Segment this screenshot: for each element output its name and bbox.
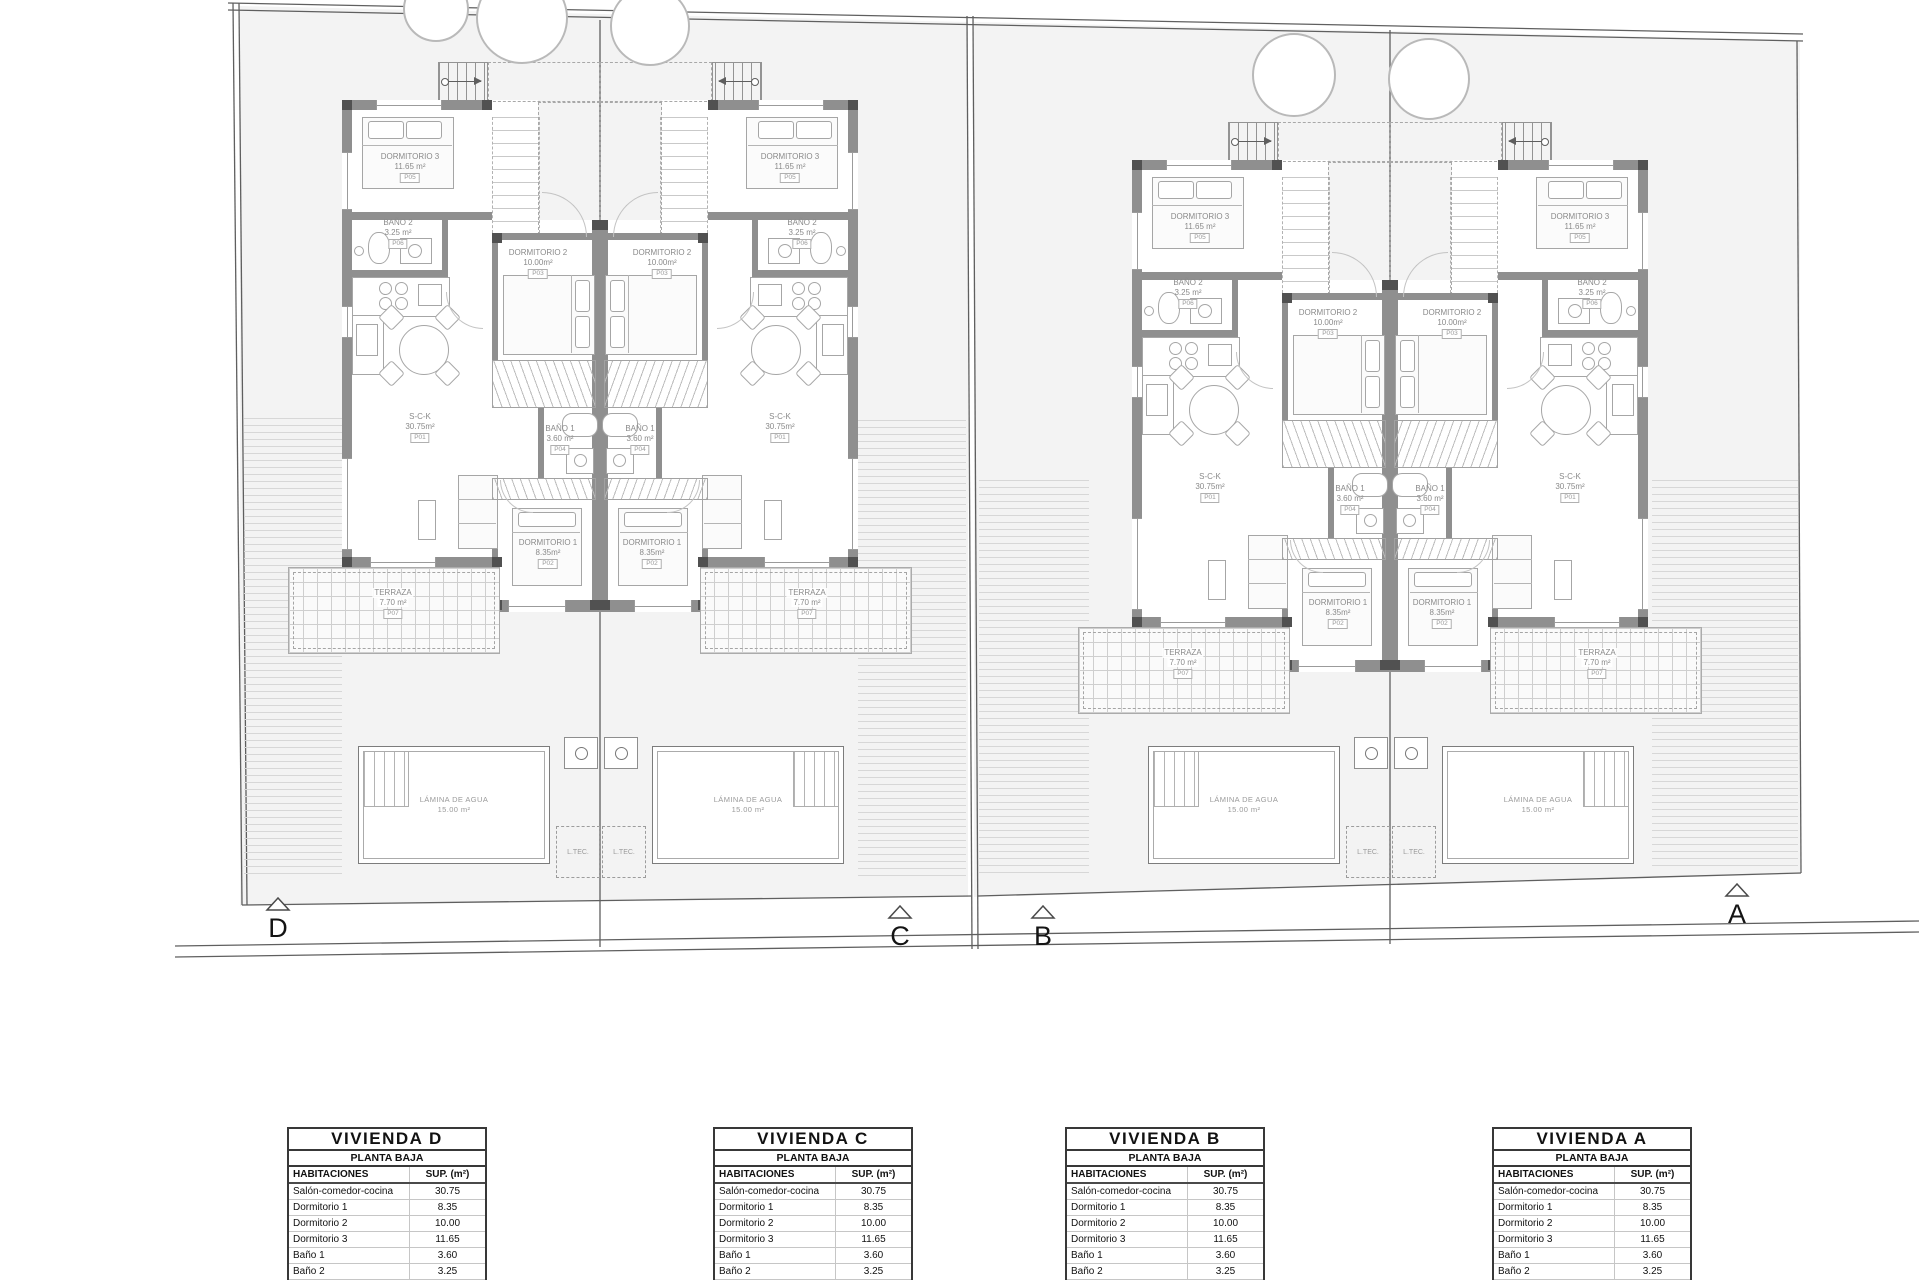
window	[1424, 660, 1482, 672]
room-name: BAÑO 2	[383, 218, 412, 228]
window	[1132, 212, 1142, 270]
room-area: 8.35m²	[640, 548, 665, 558]
wall-pillar	[1488, 293, 1498, 303]
room-name-cell: Salón-comedor-cocina	[1067, 1184, 1187, 1199]
area-table-vivienda-d: VIVIENDA D PLANTA BAJA HABITACIONES SUP.…	[287, 1127, 487, 1280]
wall	[442, 212, 448, 277]
table-subtitle: PLANTA BAJA	[1067, 1151, 1263, 1167]
room-name: DORMITORIO 2	[1423, 308, 1482, 318]
room-name-cell: Dormitorio 3	[715, 1232, 835, 1247]
wall-pillar	[1282, 617, 1292, 627]
room-name: S-C-K	[769, 412, 791, 422]
room-area: 10.00m²	[647, 258, 676, 268]
pillow-icon	[1586, 181, 1622, 199]
room-area: 30.75m²	[1195, 482, 1224, 492]
wall-pillar	[848, 100, 858, 110]
pool-label: LÁMINA DE AGUA	[1504, 795, 1573, 805]
room-label-dormitorio2: DORMITORIO 2 10.00m² P03	[1299, 308, 1358, 339]
room-name: DORMITORIO 2	[1299, 308, 1358, 318]
table-row: Dormitorio 311.65	[1067, 1232, 1263, 1248]
room-name: S-C-K	[1199, 472, 1221, 482]
room-area-cell: 3.60	[409, 1248, 485, 1263]
room-area: 8.35m²	[536, 548, 561, 558]
room-label-terraza: TERRAZA 7.70 m² P07	[1162, 648, 1203, 679]
pillow-icon	[1308, 572, 1366, 587]
kitchen-sink-icon	[1208, 344, 1232, 366]
room-area: 3.25 m²	[1578, 288, 1605, 298]
window	[370, 557, 436, 567]
room-area-cell: 11.65	[409, 1232, 485, 1247]
room-area-cell: 30.75	[835, 1184, 911, 1199]
room-name-cell: Dormitorio 2	[1494, 1216, 1614, 1231]
kitchen-sink-icon	[418, 284, 442, 306]
kitchen-sink-icon	[758, 284, 782, 306]
room-area-cell: 10.00	[1614, 1216, 1690, 1231]
wall	[656, 408, 662, 478]
table-row: Baño 13.60	[289, 1248, 485, 1264]
wall-pillar	[598, 220, 608, 230]
room-name: DORMITORIO 3	[761, 152, 820, 162]
table-subtitle: PLANTA BAJA	[1494, 1151, 1690, 1167]
room-area: 11.65 m²	[775, 162, 806, 172]
kitchen-sink-icon	[1146, 384, 1168, 416]
room-tag: P07	[383, 609, 403, 619]
window	[1638, 366, 1648, 398]
table-row: Dormitorio 18.35	[1067, 1200, 1263, 1216]
stove-burner-icon	[395, 282, 408, 295]
tv-cabinet-icon	[418, 500, 436, 540]
room-name-cell: Dormitorio 3	[289, 1232, 409, 1247]
room-label-terraza: TERRAZA 7.70 m² P07	[786, 588, 827, 619]
faucet-icon	[1403, 514, 1416, 527]
room-area-cell: 8.35	[1187, 1200, 1263, 1215]
table-row: Dormitorio 18.35	[715, 1200, 911, 1216]
wall-pillar	[1390, 660, 1400, 670]
room-tag: P04	[1340, 505, 1360, 515]
window	[342, 306, 352, 338]
pillow-icon	[368, 121, 404, 139]
table-row: Dormitorio 210.00	[1494, 1216, 1690, 1232]
wall	[1328, 468, 1334, 538]
pillow-icon	[624, 512, 682, 527]
stove-burner-icon	[395, 297, 408, 310]
drain-icon	[1144, 306, 1154, 316]
wall-pillar	[1638, 617, 1648, 627]
column-header-rooms: HABITACIONES	[715, 1167, 835, 1182]
room-name: BAÑO 2	[787, 218, 816, 228]
table-row: Baño 23.25	[1494, 1264, 1690, 1280]
room-label-bano2: BAÑO 2 3.25 m² P06	[1173, 278, 1202, 309]
room-tag: P02	[642, 559, 662, 569]
room-name: TERRAZA	[786, 588, 827, 598]
room-name: DORMITORIO 3	[1551, 212, 1610, 222]
room-name: DORMITORIO 2	[509, 248, 568, 258]
exterior-stairs-icon	[712, 62, 762, 102]
ltec-label: L.TEC.	[1357, 849, 1379, 856]
room-area-cell: 3.25	[835, 1264, 911, 1279]
porch-outline	[1390, 122, 1502, 162]
tree-icon	[1252, 33, 1336, 117]
room-area-cell: 8.35	[835, 1200, 911, 1215]
drain-icon	[354, 246, 364, 256]
room-tag: P01	[410, 433, 430, 443]
window	[1166, 160, 1232, 170]
room-area-cell: 3.25	[409, 1264, 485, 1279]
pool-label: LÁMINA DE AGUA	[1210, 795, 1279, 805]
pool: LÁMINA DE AGUA15.00 m²	[652, 746, 844, 864]
column-header-area: SUP. (m²)	[409, 1167, 485, 1182]
room-area-cell: 11.65	[1614, 1232, 1690, 1247]
faucet-icon	[574, 454, 587, 467]
table-subtitle: PLANTA BAJA	[715, 1151, 911, 1167]
wall-pillar	[1132, 160, 1142, 170]
room-area-cell: 8.35	[409, 1200, 485, 1215]
room-label-dormitorio2: DORMITORIO 2 10.00m² P03	[509, 248, 568, 279]
stair-void-hatch	[660, 117, 708, 233]
table-row: Salón-comedor-cocina30.75	[1494, 1184, 1690, 1200]
room-area: 3.25 m²	[788, 228, 815, 238]
room-tag: P06	[792, 239, 812, 249]
wall-pillar	[1282, 293, 1292, 303]
room-area-cell: 3.60	[1187, 1248, 1263, 1263]
pillow-icon	[575, 280, 590, 312]
window	[1638, 212, 1648, 270]
table-row: Dormitorio 210.00	[715, 1216, 911, 1232]
room-tag: P02	[538, 559, 558, 569]
room-label-bano1: BAÑO 1 3.60 m² P04	[545, 424, 574, 455]
wall-pillar	[708, 100, 718, 110]
room-name: DORMITORIO 1	[519, 538, 578, 548]
table-row: Baño 23.25	[715, 1264, 911, 1280]
stair-void-hatch	[1282, 177, 1330, 293]
column-header-area: SUP. (m²)	[1614, 1167, 1690, 1182]
window	[848, 458, 858, 550]
wall	[1232, 272, 1238, 337]
table-rows: Salón-comedor-cocina30.75Dormitorio 18.3…	[1067, 1184, 1263, 1280]
room-name-cell: Baño 2	[1067, 1264, 1187, 1279]
room-name-cell: Dormitorio 1	[289, 1200, 409, 1215]
section-marker-c: C	[890, 921, 910, 952]
section-marker-a: A	[1728, 899, 1746, 930]
wall	[352, 212, 492, 220]
room-label-dormitorio3: DORMITORIO 3 11.65 m² P05	[1171, 212, 1230, 243]
window	[848, 152, 858, 210]
ltec-label: L.TEC.	[1403, 849, 1425, 856]
drain-icon	[1626, 306, 1636, 316]
area-table-vivienda-b: VIVIENDA B PLANTA BAJA HABITACIONES SUP.…	[1065, 1127, 1265, 1280]
room-name: DORMITORIO 1	[1413, 598, 1472, 608]
room-tag: P05	[1570, 233, 1590, 243]
unit-drawing: DORMITORIO 3 11.65 m² P05 BAÑO 2 3.25 m²…	[600, 60, 858, 660]
room-area: 10.00m²	[523, 258, 552, 268]
table-row: Baño 13.60	[1067, 1248, 1263, 1264]
pillow-icon	[610, 280, 625, 312]
wall	[1142, 272, 1282, 280]
wall	[708, 212, 848, 220]
pool: LÁMINA DE AGUA15.00 m²	[358, 746, 550, 864]
tv-cabinet-icon	[1554, 560, 1572, 600]
unit-drawing: DORMITORIO 3 11.65 m² P05 BAÑO 2 3.25 m²…	[1390, 120, 1648, 720]
site-plan-canvas: LÁMINA DE AGUA15.00 m² LÁMINA DE AGUA15.…	[0, 0, 1920, 1280]
room-name-cell: Dormitorio 3	[1494, 1232, 1614, 1247]
exterior-stairs-icon	[1502, 122, 1552, 162]
paved-yard	[979, 480, 1089, 876]
stove-burner-icon	[808, 282, 821, 295]
wall-pillar	[1488, 617, 1498, 627]
room-label-sck: S-C-K 30.75m² P01	[405, 412, 434, 443]
wall-pillar	[600, 600, 610, 610]
room-area: 30.75m²	[405, 422, 434, 432]
wardrobe-icon	[1394, 420, 1498, 468]
room-area: 7.70 m²	[377, 598, 408, 608]
column-header-rooms: HABITACIONES	[1067, 1167, 1187, 1182]
room-name: BAÑO 2	[1173, 278, 1202, 288]
room-area-cell: 8.35	[1614, 1200, 1690, 1215]
table-title: VIVIENDA B	[1067, 1129, 1263, 1151]
room-name: DORMITORIO 1	[1309, 598, 1368, 608]
table-rows: Salón-comedor-cocina30.75Dormitorio 18.3…	[1494, 1184, 1690, 1280]
stove-burner-icon	[1598, 342, 1611, 355]
pillow-icon	[796, 121, 832, 139]
room-label-dormitorio1: DORMITORIO 1 8.35m² P02	[1413, 598, 1472, 629]
window	[1638, 518, 1648, 610]
pillow-icon	[758, 121, 794, 139]
room-name: S-C-K	[1559, 472, 1581, 482]
column-header-rooms: HABITACIONES	[1494, 1167, 1614, 1182]
room-tag: P03	[652, 269, 672, 279]
window	[848, 306, 858, 338]
table-row: Baño 23.25	[289, 1264, 485, 1280]
room-label-bano1: BAÑO 1 3.60 m² P04	[625, 424, 654, 455]
exterior-stairs-icon	[438, 62, 488, 102]
room-label-dormitorio1: DORMITORIO 1 8.35m² P02	[1309, 598, 1368, 629]
pillow-icon	[1365, 340, 1380, 372]
room-name: TERRAZA	[372, 588, 413, 598]
table-header-row: HABITACIONES SUP. (m²)	[289, 1167, 485, 1184]
window	[1548, 160, 1614, 170]
kitchen-sink-icon	[1548, 344, 1572, 366]
table-row: Dormitorio 18.35	[1494, 1200, 1690, 1216]
wall	[752, 270, 848, 277]
room-area: 3.60 m²	[1336, 494, 1363, 504]
window	[342, 152, 352, 210]
table-row: Baño 23.25	[1067, 1264, 1263, 1280]
table-header-row: HABITACIONES SUP. (m²)	[1067, 1167, 1263, 1184]
dwelling-unit-c: DORMITORIO 3 11.65 m² P05 BAÑO 2 3.25 m²…	[600, 60, 858, 660]
room-name-cell: Salón-comedor-cocina	[289, 1184, 409, 1199]
stove-burner-icon	[1582, 342, 1595, 355]
wardrobe-icon	[1282, 420, 1386, 468]
room-area: 7.70 m²	[1581, 658, 1612, 668]
room-area: 3.60 m²	[546, 434, 573, 444]
pillow-icon	[610, 316, 625, 348]
room-tag: P01	[1200, 493, 1220, 503]
table-title: VIVIENDA A	[1494, 1129, 1690, 1151]
room-area-cell: 11.65	[835, 1232, 911, 1247]
room-area-cell: 11.65	[1187, 1232, 1263, 1247]
window	[1554, 617, 1620, 627]
drain-icon	[836, 246, 846, 256]
wall	[492, 233, 498, 360]
table-header-row: HABITACIONES SUP. (m²)	[715, 1167, 911, 1184]
room-label-bano2: BAÑO 2 3.25 m² P06	[787, 218, 816, 249]
room-tag: P06	[1582, 299, 1602, 309]
room-label-dormitorio2: DORMITORIO 2 10.00m² P03	[633, 248, 692, 279]
table-row: Baño 13.60	[715, 1248, 911, 1264]
pool: LÁMINA DE AGUA15.00 m²	[1442, 746, 1634, 864]
room-area: 11.65 m²	[1565, 222, 1596, 232]
room-name-cell: Dormitorio 1	[1067, 1200, 1187, 1215]
porch-outline	[600, 62, 712, 102]
faucet-icon	[613, 454, 626, 467]
kitchen-sink-icon	[356, 324, 378, 356]
faucet-icon	[1364, 514, 1377, 527]
room-label-bano2: BAÑO 2 3.25 m² P06	[1577, 278, 1606, 309]
pillow-icon	[1548, 181, 1584, 199]
room-name-cell: Baño 1	[1067, 1248, 1187, 1263]
table-row: Salón-comedor-cocina30.75	[1067, 1184, 1263, 1200]
room-name-cell: Salón-comedor-cocina	[715, 1184, 835, 1199]
room-tag: P06	[388, 239, 408, 249]
room-name-cell: Baño 1	[715, 1248, 835, 1263]
wall-pillar	[1132, 617, 1142, 627]
pool-label: LÁMINA DE AGUA	[420, 795, 489, 805]
room-name: DORMITORIO 2	[633, 248, 692, 258]
wall-pillar	[492, 557, 502, 567]
room-tag: P01	[1560, 493, 1580, 503]
room-name-cell: Dormitorio 1	[715, 1200, 835, 1215]
wardrobe-icon	[492, 360, 596, 408]
room-tag: P07	[1173, 669, 1193, 679]
stove-burner-icon	[1185, 342, 1198, 355]
room-label-bano1: BAÑO 1 3.60 m² P04	[1415, 484, 1444, 515]
wall	[702, 233, 708, 360]
room-name-cell: Salón-comedor-cocina	[1494, 1184, 1614, 1199]
pool-area: 15.00 m²	[1228, 805, 1261, 815]
room-tag: P01	[770, 433, 790, 443]
room-name-cell: Baño 2	[289, 1264, 409, 1279]
window	[1132, 518, 1142, 610]
stove-burner-icon	[1185, 357, 1198, 370]
room-name: TERRAZA	[1576, 648, 1617, 658]
wardrobe-icon	[604, 360, 708, 408]
window	[1160, 617, 1226, 627]
room-tag: P05	[400, 173, 420, 183]
sofa-icon	[1492, 535, 1532, 609]
room-tag: P03	[1442, 329, 1462, 339]
wall	[1282, 293, 1288, 420]
stair-void-hatch	[492, 117, 540, 233]
outdoor-shower-icon	[1394, 737, 1428, 769]
room-area: 3.60 m²	[1416, 494, 1443, 504]
room-name: BAÑO 1	[1415, 484, 1444, 494]
room-tag: P03	[1318, 329, 1338, 339]
wall-pillar	[1272, 160, 1282, 170]
table-row: Salón-comedor-cocina30.75	[289, 1184, 485, 1200]
room-area: 30.75m²	[1555, 482, 1584, 492]
room-name-cell: Baño 2	[1494, 1264, 1614, 1279]
room-area-cell: 30.75	[409, 1184, 485, 1199]
column-header-area: SUP. (m²)	[1187, 1167, 1263, 1182]
room-label-bano2: BAÑO 2 3.25 m² P06	[383, 218, 412, 249]
area-table-vivienda-a: VIVIENDA A PLANTA BAJA HABITACIONES SUP.…	[1492, 1127, 1692, 1280]
room-tag: P07	[797, 609, 817, 619]
room-area: 8.35m²	[1430, 608, 1455, 618]
room-label-sck: S-C-K 30.75m² P01	[1195, 472, 1224, 503]
room-label-terraza: TERRAZA 7.70 m² P07	[372, 588, 413, 619]
wall-pillar	[1498, 160, 1508, 170]
table-title: VIVIENDA C	[715, 1129, 911, 1151]
room-label-sck: S-C-K 30.75m² P01	[1555, 472, 1584, 503]
ltec-label: L.TEC.	[613, 849, 635, 856]
window	[376, 100, 442, 110]
area-table-vivienda-c: VIVIENDA C PLANTA BAJA HABITACIONES SUP.…	[713, 1127, 913, 1280]
room-name: BAÑO 1	[625, 424, 654, 434]
column-header-area: SUP. (m²)	[835, 1167, 911, 1182]
wall-pillar	[698, 233, 708, 243]
wall	[1446, 468, 1452, 538]
room-label-terraza: TERRAZA 7.70 m² P07	[1576, 648, 1617, 679]
room-label-bano1: BAÑO 1 3.60 m² P04	[1335, 484, 1364, 515]
pillow-icon	[1414, 572, 1472, 587]
room-area-cell: 10.00	[1187, 1216, 1263, 1231]
outdoor-shower-icon	[564, 737, 598, 769]
room-name: S-C-K	[409, 412, 431, 422]
wall	[538, 408, 544, 478]
room-tag: P04	[1420, 505, 1440, 515]
pillow-icon	[1400, 340, 1415, 372]
room-area: 10.00m²	[1437, 318, 1466, 328]
outdoor-shower-icon	[604, 737, 638, 769]
room-tag: P03	[528, 269, 548, 279]
table-row: Dormitorio 210.00	[1067, 1216, 1263, 1232]
room-name-cell: Baño 1	[289, 1248, 409, 1263]
table-row: Baño 13.60	[1494, 1248, 1690, 1264]
room-name: TERRAZA	[1162, 648, 1203, 658]
wall	[1492, 293, 1498, 420]
room-area: 8.35m²	[1326, 608, 1351, 618]
table-rows: Salón-comedor-cocina30.75Dormitorio 18.3…	[289, 1184, 485, 1280]
wall-pillar	[848, 557, 858, 567]
pool-area: 15.00 m²	[438, 805, 471, 815]
room-tag: P04	[550, 445, 570, 455]
table-row: Dormitorio 311.65	[289, 1232, 485, 1248]
room-name: DORMITORIO 3	[381, 152, 440, 162]
room-area-cell: 30.75	[1614, 1184, 1690, 1199]
table-title: VIVIENDA D	[289, 1129, 485, 1151]
room-label-dormitorio1: DORMITORIO 1 8.35m² P02	[623, 538, 682, 569]
porch-outline	[1278, 122, 1390, 162]
tv-cabinet-icon	[764, 500, 782, 540]
table-row: Dormitorio 210.00	[289, 1216, 485, 1232]
room-label-dormitorio2: DORMITORIO 2 10.00m² P03	[1423, 308, 1482, 339]
room-tag: P02	[1432, 619, 1452, 629]
stove-burner-icon	[1169, 342, 1182, 355]
unit-drawing: DORMITORIO 3 11.65 m² P05 BAÑO 2 3.25 m²…	[342, 60, 600, 660]
wall-pillar	[590, 600, 600, 610]
table-rows: Salón-comedor-cocina30.75Dormitorio 18.3…	[715, 1184, 911, 1280]
window	[342, 458, 352, 550]
room-area: 30.75m²	[765, 422, 794, 432]
section-marker-d: D	[268, 913, 288, 944]
window	[1132, 366, 1142, 398]
room-name: BAÑO 2	[1577, 278, 1606, 288]
room-area: 3.25 m²	[1174, 288, 1201, 298]
wall-pillar	[698, 557, 708, 567]
dwelling-unit-a: DORMITORIO 3 11.65 m² P05 BAÑO 2 3.25 m²…	[1390, 120, 1648, 720]
room-label-dormitorio1: DORMITORIO 1 8.35m² P02	[519, 538, 578, 569]
pool: LÁMINA DE AGUA15.00 m²	[1148, 746, 1340, 864]
